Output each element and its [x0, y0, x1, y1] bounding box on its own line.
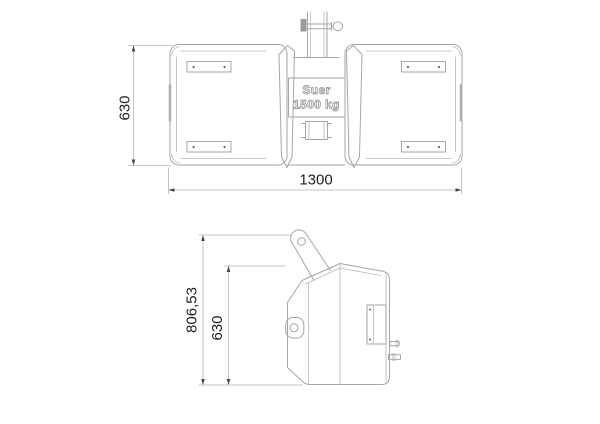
left-wing: [169, 45, 287, 166]
dim-side-body-height: 630: [209, 266, 286, 385]
rear-pins: [389, 340, 401, 360]
hitch-tab-hole-icon: [290, 324, 298, 332]
drawing-canvas: Suer 1500 kg 630: [0, 0, 600, 424]
dim-side-overall-height-label: 806,53: [184, 287, 201, 333]
front-view: Suer 1500 kg 630: [117, 12, 463, 194]
side-view: 806,53 630: [184, 230, 401, 385]
dim-side-overall-height: 806,53: [184, 235, 304, 385]
dim-front-width: 1300: [169, 168, 462, 195]
label-plate: Suer 1500 kg: [289, 78, 346, 117]
weight-text: 1500 kg: [293, 98, 340, 112]
dim-front-height: 630: [117, 46, 173, 166]
handle-slot: [169, 84, 172, 122]
lifting-bracket: [291, 230, 331, 281]
bracket-hole-icon: [298, 238, 306, 246]
center-section: Suer 1500 kg: [279, 46, 362, 168]
dim-front-width-label: 1300: [299, 172, 332, 189]
dim-side-body-height-label: 630: [209, 315, 226, 340]
receiver-opening: [302, 122, 332, 140]
dim-front-height-label: 630: [117, 95, 134, 120]
side-body: [286, 264, 401, 385]
right-wing: [345, 45, 462, 166]
handle-slot: [460, 84, 463, 122]
right-rib: [347, 46, 363, 168]
brand-text: Suer: [302, 83, 330, 97]
hitch-tab: [286, 318, 304, 339]
side-plate: [367, 305, 386, 344]
top-hitch-tower: [301, 12, 343, 58]
